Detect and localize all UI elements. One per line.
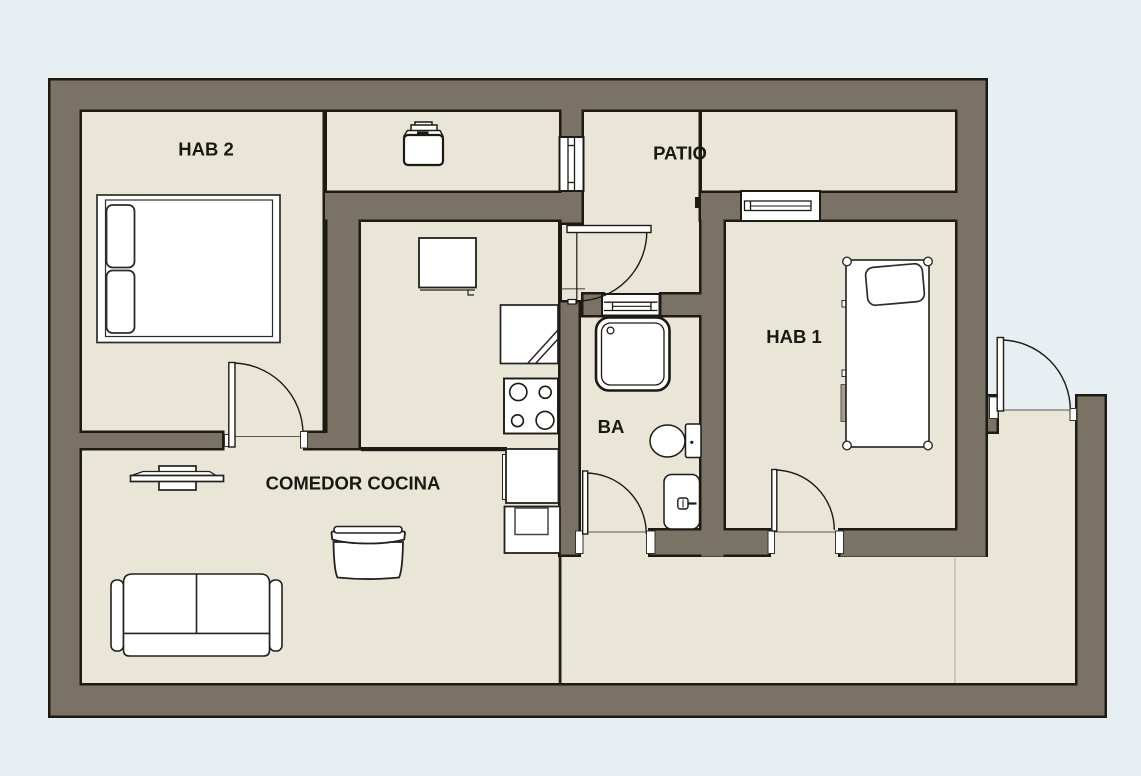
svg-text:COMEDOR COCINA: COMEDOR COCINA [266,473,441,494]
svg-text:PATIO: PATIO [653,143,707,164]
svg-text:HAB 1: HAB 1 [766,326,822,347]
svg-text:HAB 2: HAB 2 [178,139,234,160]
svg-text:BA: BA [598,416,625,437]
